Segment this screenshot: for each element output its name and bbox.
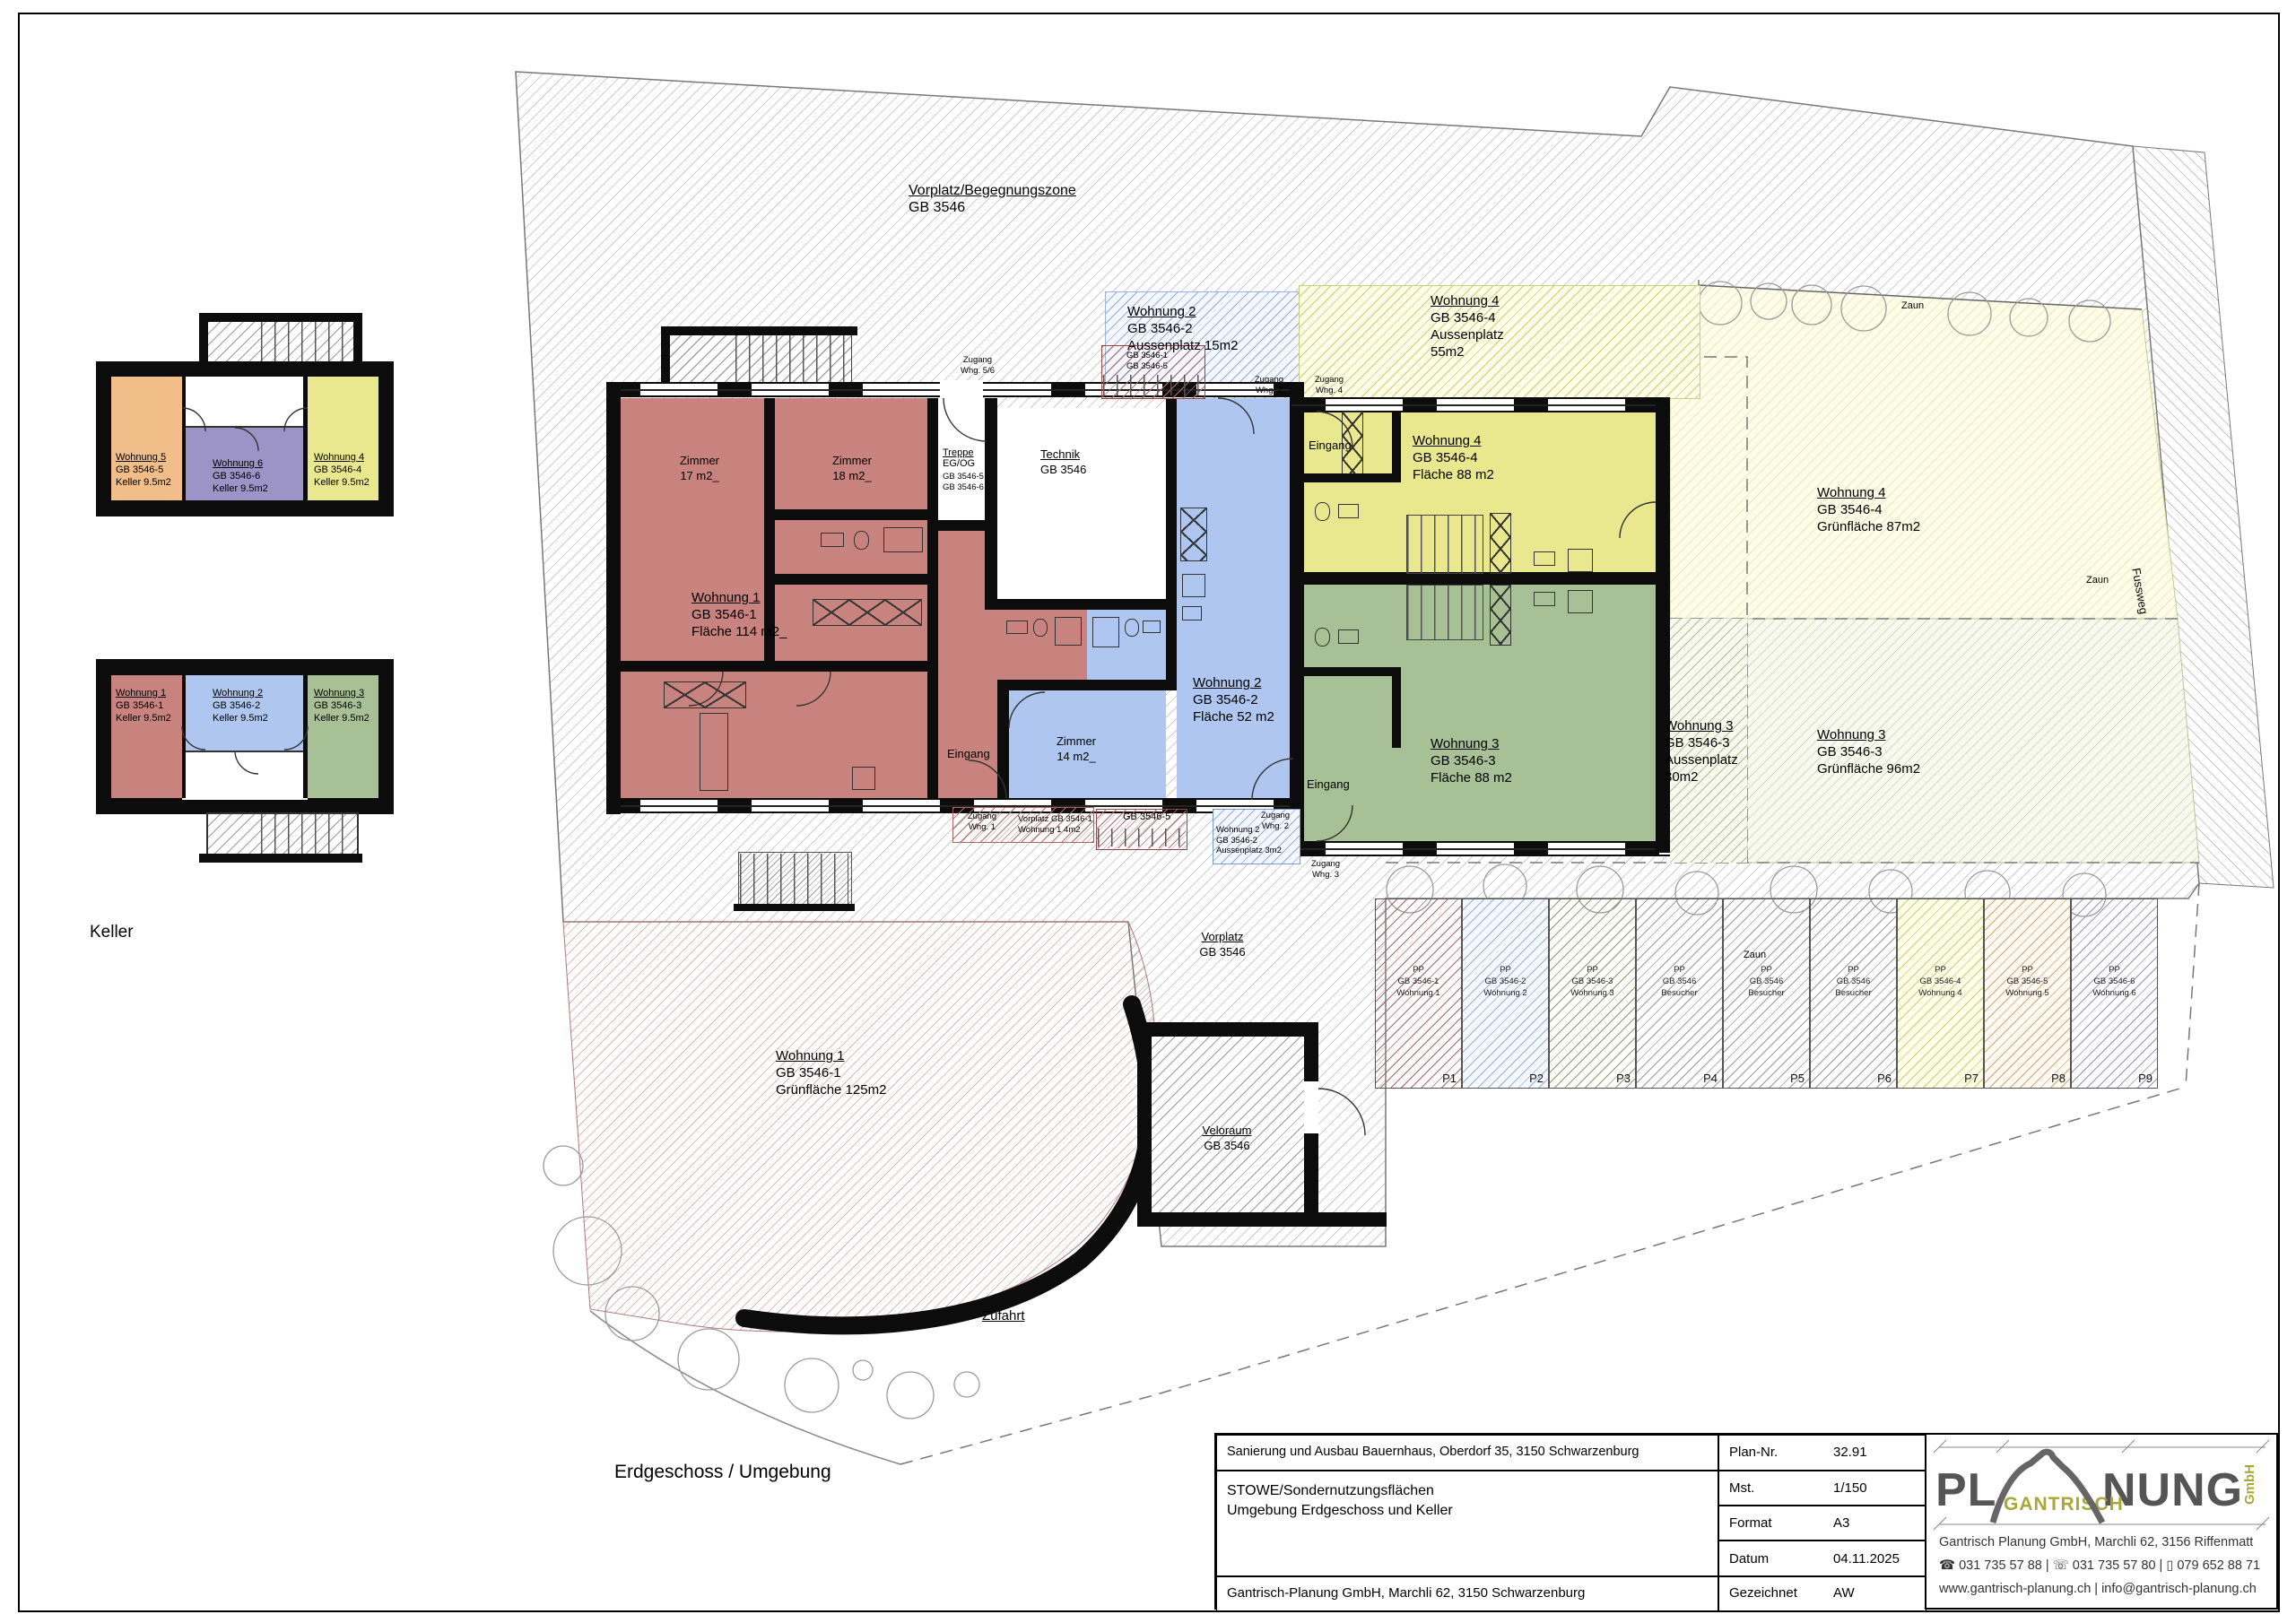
logo-address: Gantrisch Planung GmbH, Marchli 62, 3156…	[1939, 1535, 2253, 1549]
zaun-label-right: Zaun	[2086, 574, 2109, 586]
zugang-whg56: Zugang	[946, 355, 1009, 366]
w4-room-title: Wohnung 4	[1413, 432, 1494, 449]
mst-value: 1/150	[1833, 1480, 1867, 1496]
eingang-w1: Eingang	[947, 746, 990, 761]
plan-subject-2: Umgebung Erdgeschoss und Keller	[1227, 1503, 1453, 1519]
logo-mountain	[1926, 1435, 2276, 1532]
zimmer17-label: Zimmer	[659, 453, 740, 468]
stairs-south-gb: GB 3546-5	[1123, 812, 1170, 823]
keller-w2-name: Wohnung 2	[213, 687, 268, 699]
zone-w3a-title: Wohnung 3	[1665, 717, 1738, 734]
vorplatz-w1-label: Vorplatz GB 3546-1	[1018, 814, 1092, 825]
zone-vorplatz-title: Vorplatz	[1182, 929, 1263, 944]
w1-room-title: Wohnung 1	[691, 589, 787, 606]
stairs-north-gb2: GB 3546-5	[1126, 361, 1168, 372]
w3-room-title: Wohnung 3	[1431, 735, 1512, 752]
keller-w6-gb: GB 3546-6	[213, 470, 268, 482]
zaun-label-top: Zaun	[1901, 299, 1924, 312]
keller-w3-area: Keller 9.5m2	[314, 712, 370, 725]
keller-title: Keller	[90, 924, 134, 941]
plan-subject-1: STOWE/Sondernutzungsflächen	[1227, 1483, 1434, 1499]
plannr-label: Plan-Nr.	[1729, 1445, 1778, 1460]
stairs-north-gb1: GB 3546-1	[1126, 351, 1168, 361]
title-block: Sanierung und Ausbau Bauernhaus, Oberdor…	[1214, 1433, 1925, 1610]
keller-w4-area: Keller 9.5m2	[314, 476, 370, 489]
zimmer14-label: Zimmer	[1040, 733, 1112, 749]
keller-w5-area: Keller 9.5m2	[116, 476, 171, 489]
keller-w3-gb: GB 3546-3	[314, 699, 370, 712]
datum-value: 04.11.2025	[1833, 1551, 1900, 1567]
veloraum-title: Veloraum	[1182, 1123, 1272, 1138]
zone-begegnung-title: Vorplatz/Begegnungszone	[909, 182, 1076, 199]
plan-sheet: Wohnung 5 GB 3546-5 Keller 9.5m2 Wohnung…	[0, 0, 2296, 1623]
zimmer18-label: Zimmer	[812, 453, 892, 468]
logo-phones: ☎ 031 735 57 88 | ☏ 031 735 57 80 | ▯ 07…	[1939, 1558, 2260, 1573]
keller-w4-gb: GB 3546-4	[314, 464, 370, 476]
datum-label: Datum	[1729, 1551, 1769, 1567]
technik-title: Technik	[1040, 447, 1086, 462]
keller-w2-area: Keller 9.5m2	[213, 712, 268, 725]
eingang-w4: Eingang	[1309, 438, 1352, 453]
w2-room-title: Wohnung 2	[1193, 674, 1274, 691]
zugang-whg4-top: Zugang	[1302, 375, 1356, 386]
logo-box: PL NUNG GANTRISCH GmbH Gantrisch Planung…	[1925, 1433, 2278, 1610]
zone-w3g-title: Wohnung 3	[1817, 726, 1920, 743]
keller-w3-name: Wohnung 3	[314, 687, 370, 699]
company-line: Gantrisch-Planung GmbH, Marchli 62, 3150…	[1227, 1585, 1585, 1601]
plannr-value: 32.91	[1833, 1445, 1867, 1460]
keller-w1-area: Keller 9.5m2	[116, 712, 171, 725]
zugang-whg2-bottom: Zugang	[1252, 811, 1299, 821]
format-value: A3	[1833, 1515, 1849, 1531]
keller-w5-name: Wohnung 5	[116, 451, 171, 464]
keller-w1-name: Wohnung 1	[116, 687, 171, 699]
keller-w1-gb: GB 3546-1	[116, 699, 171, 712]
keller-w4-name: Wohnung 4	[314, 451, 370, 464]
zone-begegnung-gb: GB 3546	[909, 199, 1076, 216]
keller-w6-area: Keller 9.5m2	[213, 482, 268, 495]
gezeichnet-value: AW	[1833, 1585, 1855, 1601]
zugang-whg3-bottom: Zugang	[1302, 859, 1349, 870]
zone-w4g-title: Wohnung 4	[1817, 484, 1920, 501]
format-label: Format	[1729, 1515, 1772, 1531]
treppe-title: Treppe	[943, 448, 984, 459]
zugang-whg1: Zugang	[955, 811, 1009, 822]
zone-w2a-title: Wohnung 2	[1127, 303, 1238, 320]
gezeichnet-label: Gezeichnet	[1729, 1585, 1797, 1601]
eingang-w3: Eingang	[1307, 777, 1350, 792]
keller-w2-gb: GB 3546-2	[213, 699, 268, 712]
zone-w1g-title: Wohnung 1	[776, 1047, 886, 1064]
logo-web: www.gantrisch-planung.ch | info@gantrisc…	[1939, 1582, 2257, 1596]
zaun-label-bottom: Zaun	[1744, 949, 1766, 961]
zone-w4a-title: Wohnung 4	[1431, 292, 1504, 309]
project-title: Sanierung und Ausbau Bauernhaus, Oberdor…	[1227, 1445, 1639, 1459]
keller-w5-gb: GB 3546-5	[116, 464, 171, 476]
zugang-whg2-top: Zugang	[1242, 375, 1296, 386]
keller-w6-name: Wohnung 6	[213, 457, 268, 470]
floor-title: Erdgeschoss / Umgebung	[614, 1463, 831, 1480]
mst-label: Mst.	[1729, 1480, 1754, 1496]
zufahrt-label: Zufahrt	[982, 1307, 1025, 1324]
